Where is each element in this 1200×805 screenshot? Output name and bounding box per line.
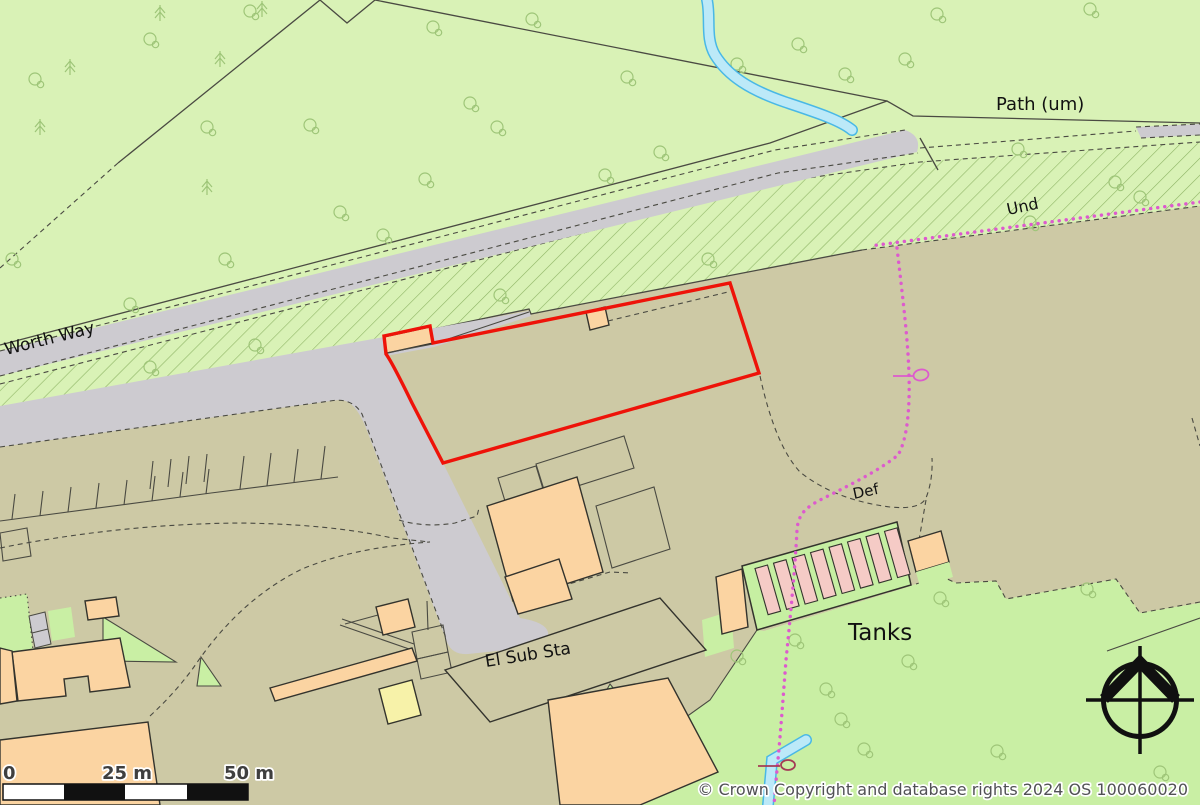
label-path-um: Path (um) bbox=[996, 94, 1084, 115]
scale-label-0: 0 bbox=[3, 763, 16, 784]
map-canvas: Worth Way Path (um) Und Def El Sub Sta T… bbox=[0, 0, 1200, 805]
scale-label-25m: 25 m bbox=[102, 763, 152, 784]
label-tanks: Tanks bbox=[847, 620, 912, 646]
copyright-attribution: © Crown Copyright and database rights 20… bbox=[697, 780, 1188, 799]
os-map-extract: Worth Way Path (um) Und Def El Sub Sta T… bbox=[0, 0, 1200, 805]
scale-label-50m: 50 m bbox=[224, 763, 274, 784]
